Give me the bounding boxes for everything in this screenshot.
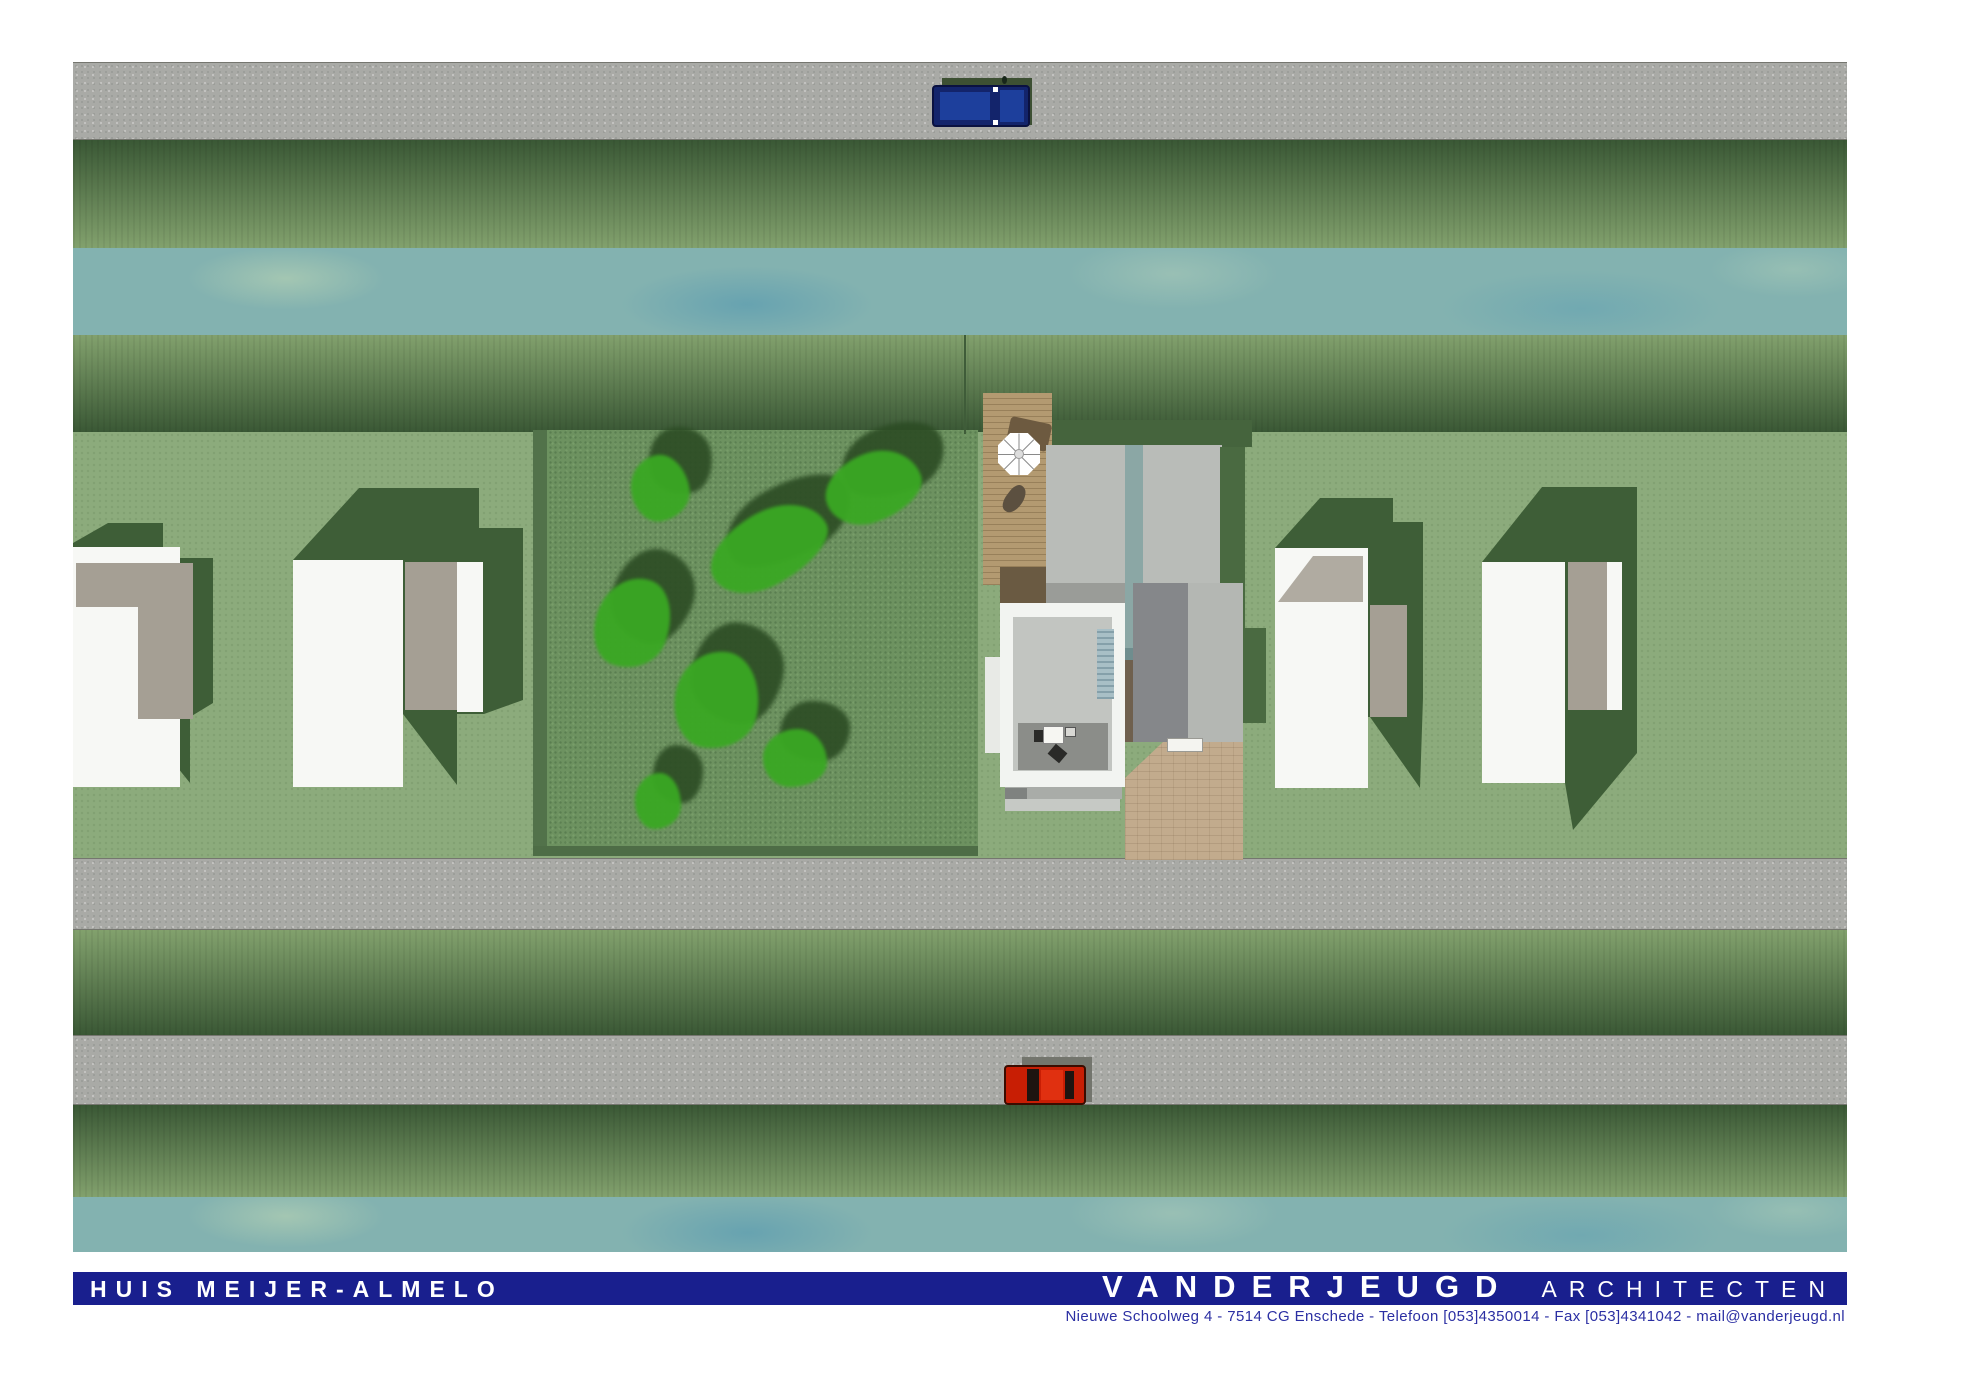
neighbor-house-4-edge [1607, 562, 1622, 710]
neighbor-house-4-wing [1568, 562, 1607, 710]
entry-step-lower [1005, 799, 1120, 811]
garden-hedge-west [533, 430, 547, 854]
neighbor-house-4-roof [1482, 562, 1565, 783]
tree-canopy [763, 729, 827, 787]
terrace-chair-right [1065, 727, 1076, 737]
tree-canopy [635, 773, 681, 829]
project-title: HUIS MEIJER-ALMELO [73, 1273, 504, 1306]
east-wall-shade [1133, 583, 1188, 742]
garden-hedge-south [533, 846, 978, 856]
entry-step-block [1005, 788, 1027, 799]
site-plan [73, 62, 1847, 1252]
road-middle [73, 858, 1847, 930]
canal-south [73, 1197, 1847, 1252]
deck-storage-block [1000, 567, 1050, 603]
hedge-middle [73, 930, 1847, 1035]
car-blue-windshield-mark-bottom [993, 120, 998, 125]
car-blue-antenna [1002, 76, 1007, 84]
car-red-rear-window [1065, 1071, 1074, 1099]
car-red [1002, 1055, 1094, 1107]
courtyard-stairs [1097, 629, 1114, 699]
car-red-windshield [1027, 1069, 1039, 1101]
main-house-roof-east [1143, 445, 1222, 583]
main-house-hedge-shadow [1050, 420, 1252, 447]
terrace-chair-left [1034, 730, 1043, 742]
hedge-north-inner [73, 335, 1847, 432]
neighbor-house-3-wing [1370, 605, 1407, 717]
bench [1167, 738, 1203, 752]
title-bar: HUIS MEIJER-ALMELO VANDERJEUGD ARCHITECT… [73, 1272, 1847, 1305]
firm-block: VANDERJEUGD ARCHITECTEN [1102, 1272, 1847, 1304]
car-red-roof [1041, 1070, 1063, 1100]
road-south [73, 1035, 1847, 1105]
hedge-south [73, 1105, 1847, 1197]
terrace-table [1043, 726, 1064, 744]
car-blue-hood [1000, 90, 1024, 122]
hedge-north-outer [73, 140, 1847, 248]
firm-name: VANDERJEUGD [1102, 1272, 1513, 1302]
main-house-roof-west [1046, 445, 1125, 583]
parasol [998, 433, 1040, 475]
neighbor-house-2-roof [293, 560, 403, 787]
neighbor-house-2-edge [457, 562, 483, 712]
neighbor-house-2-wing [405, 562, 457, 710]
address-line: Nieuwe Schoolweg 4 - 7514 CG Enschede - … [1065, 1308, 1845, 1325]
car-blue-cabin [940, 92, 990, 120]
neighbor-house-1-wing [138, 563, 193, 719]
parcel-boundary-line [964, 335, 966, 434]
courtyard-west-wall [985, 657, 1000, 753]
roof-step-strip [1046, 583, 1125, 603]
car-blue [928, 74, 1036, 132]
car-blue-windshield-mark-top [993, 87, 998, 92]
firm-type: ARCHITECTEN [1541, 1274, 1837, 1304]
canal-north [73, 248, 1847, 335]
driveway-concrete [1188, 583, 1243, 742]
hedge-east-2 [1243, 628, 1266, 723]
drawing-sheet: HUIS MEIJER-ALMELO VANDERJEUGD ARCHITECT… [0, 0, 1965, 1389]
parasol-hub [1014, 449, 1024, 459]
